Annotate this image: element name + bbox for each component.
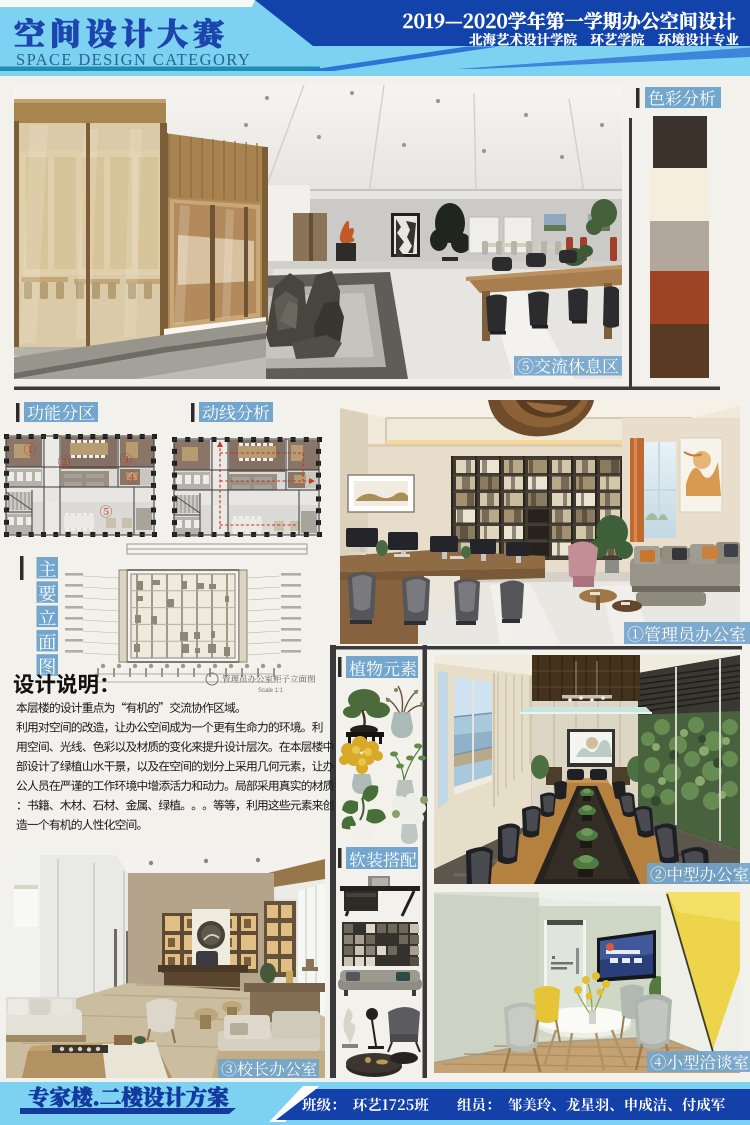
svg-text:Scale 1:1: Scale 1:1 <box>258 688 284 694</box>
svg-text:SPACE DESIGN CATEGORY: SPACE DESIGN CATEGORY <box>16 50 251 69</box>
